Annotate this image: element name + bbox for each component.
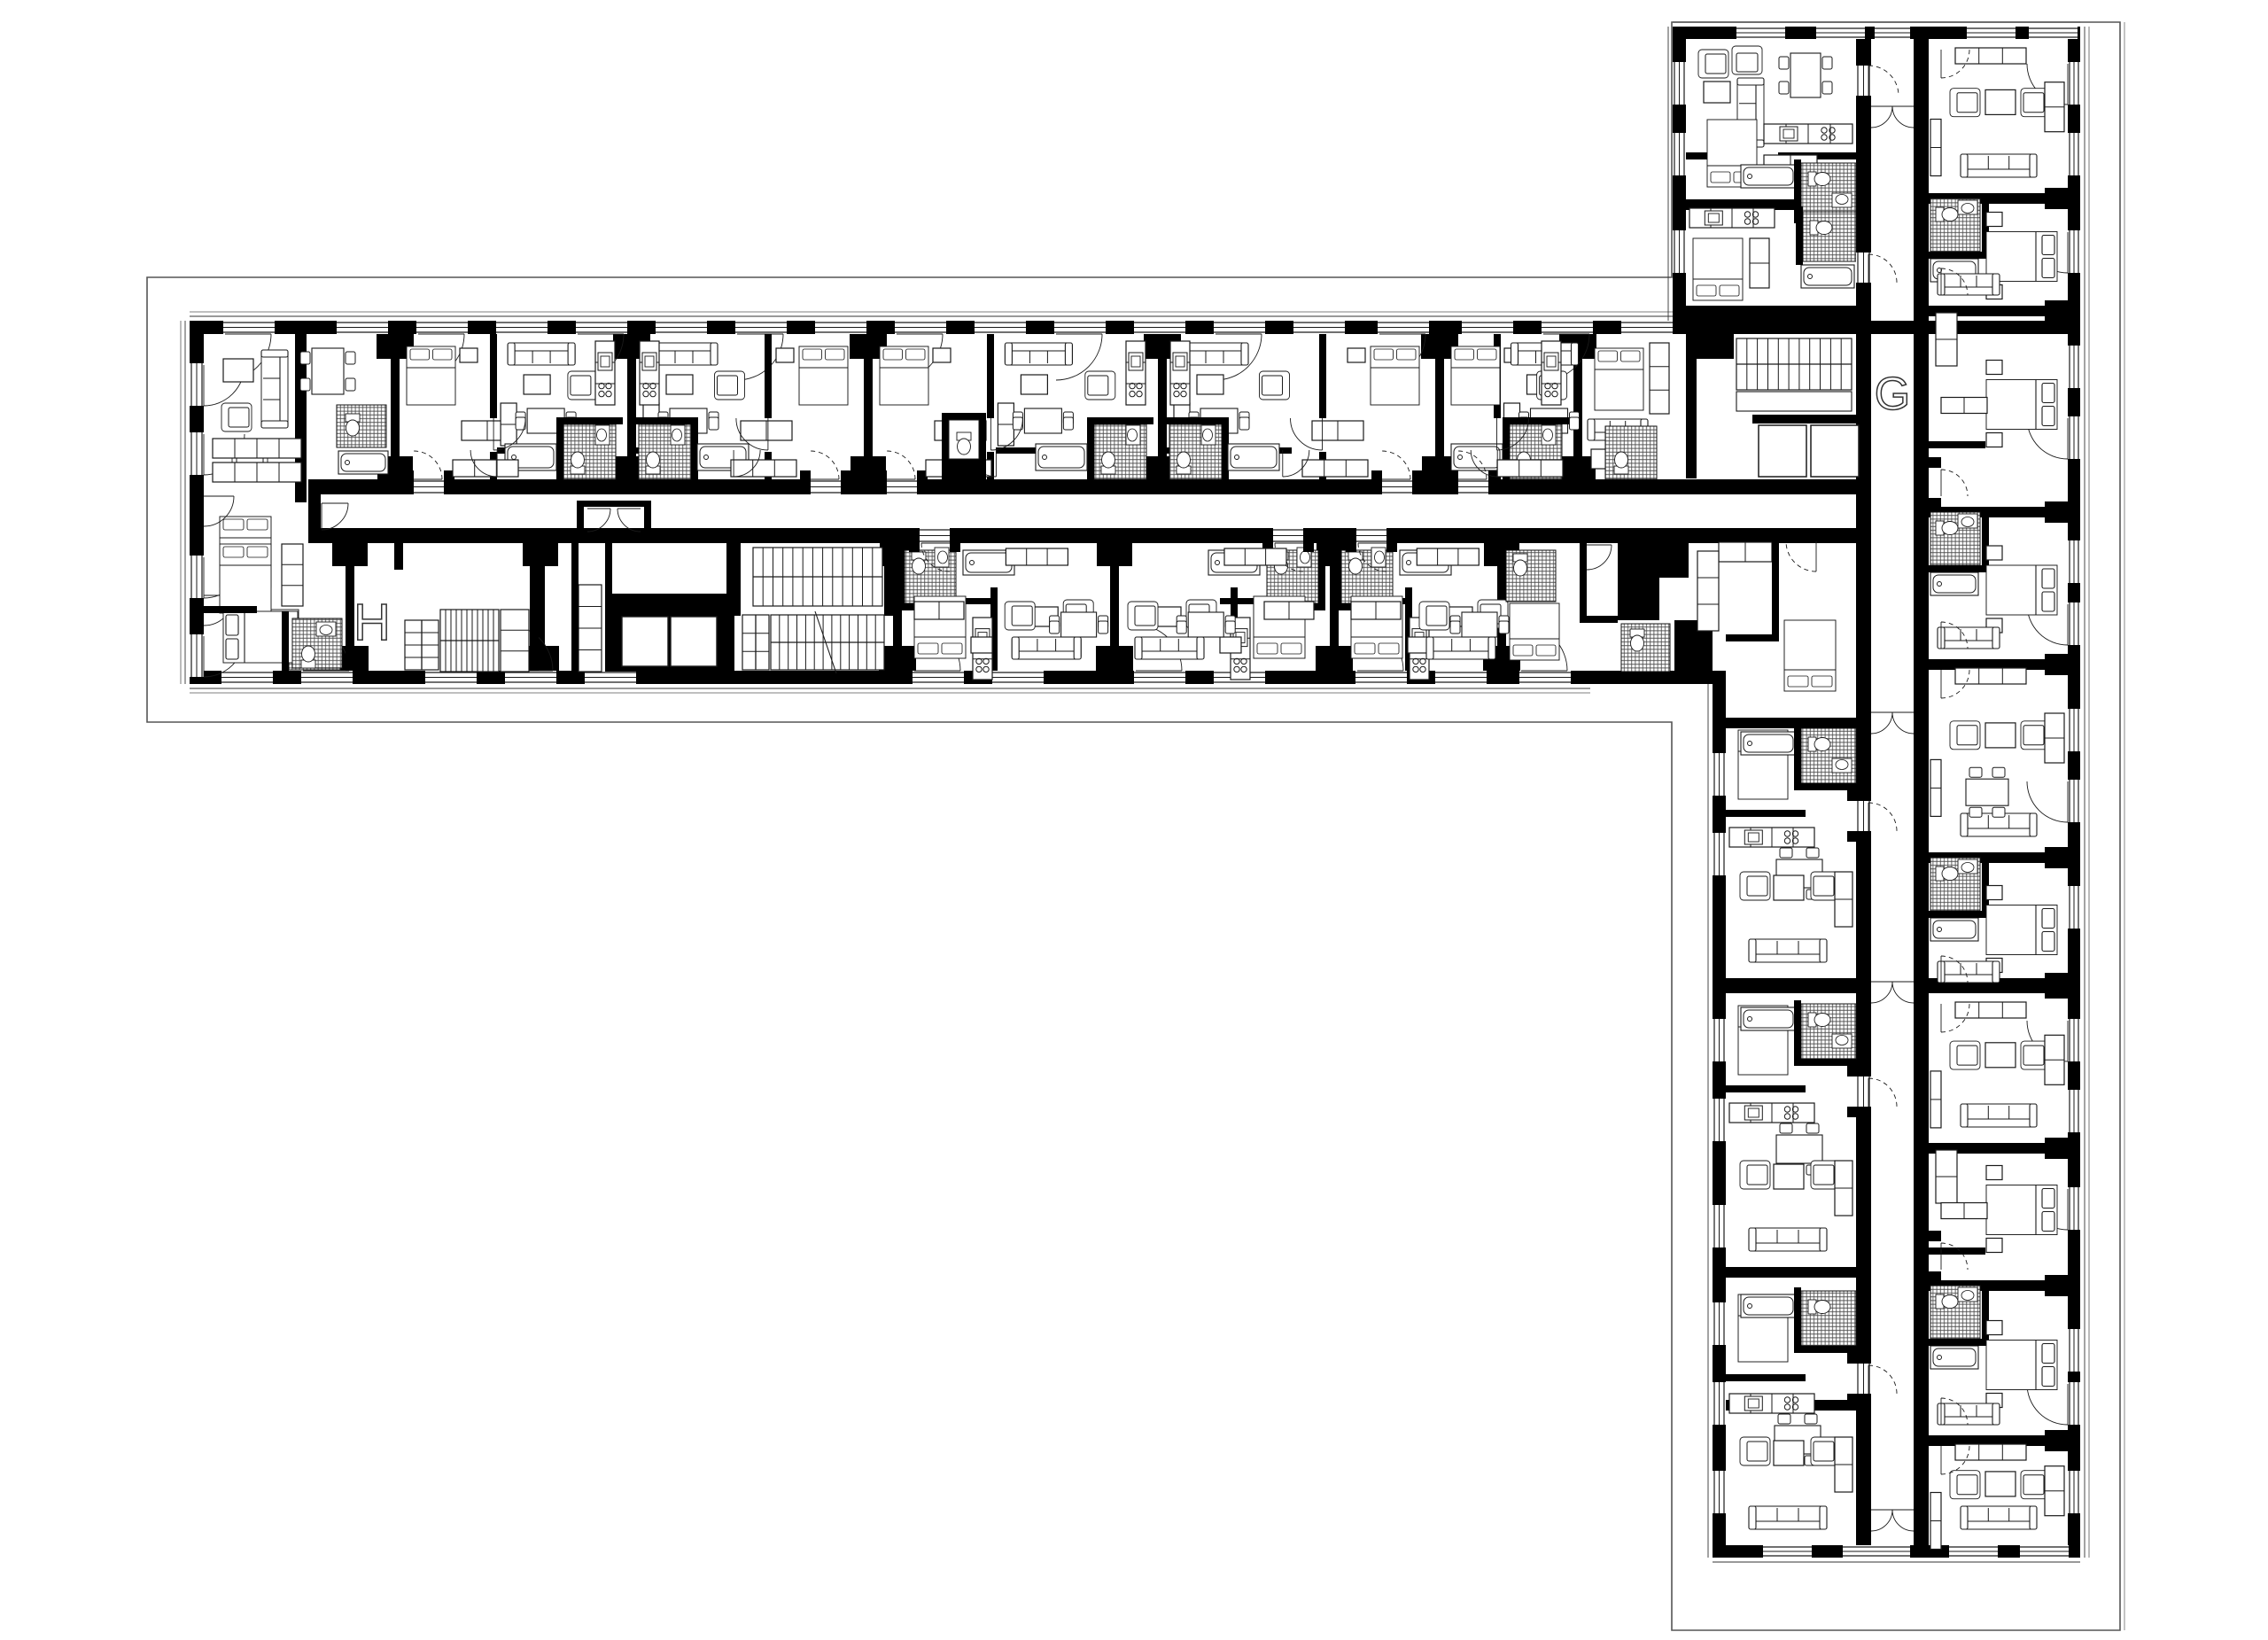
svg-text:G: G	[1875, 369, 1910, 420]
svg-text:H: H	[353, 594, 391, 651]
